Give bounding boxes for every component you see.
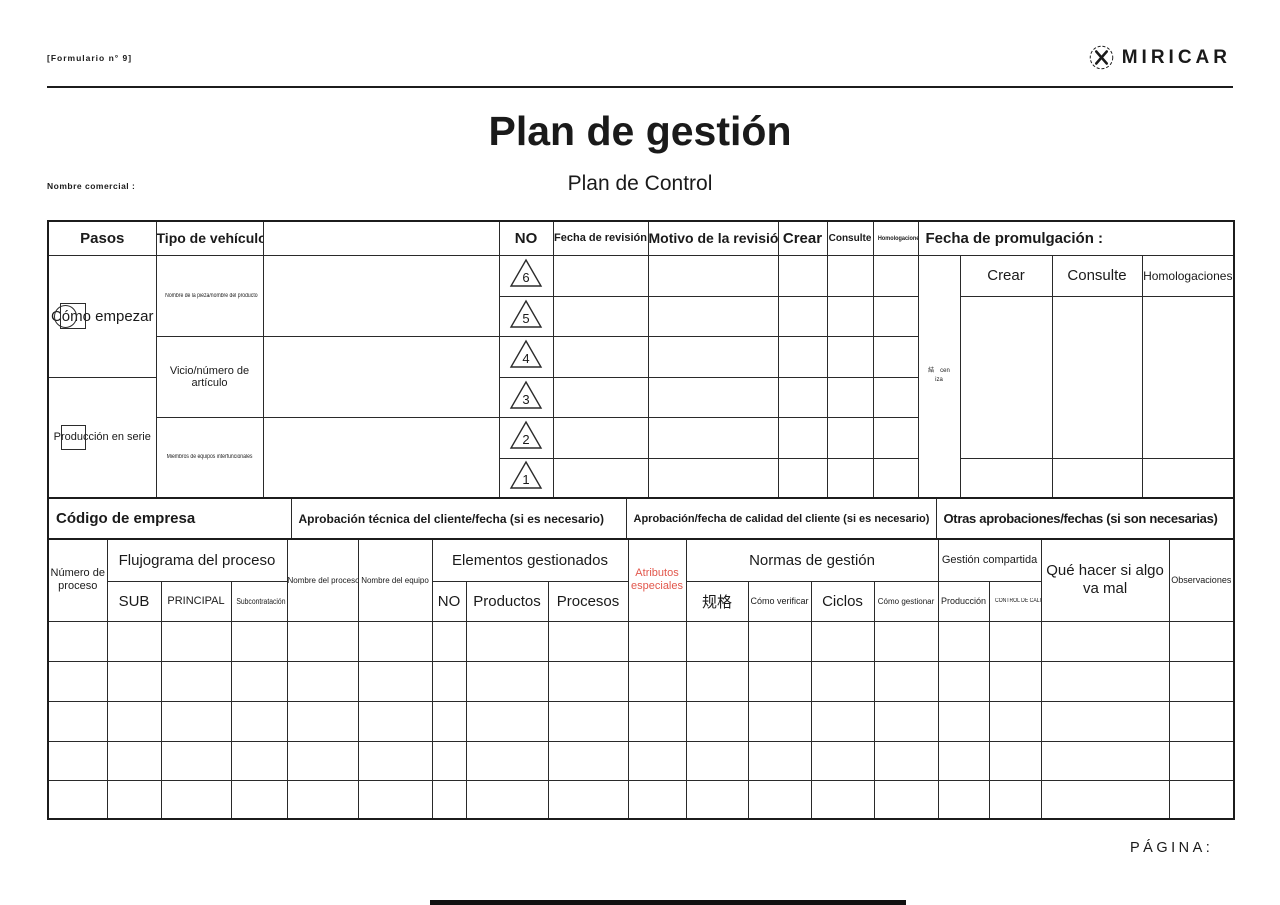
- no-marker-cell: 1: [499, 458, 553, 498]
- empty-cell: [1142, 296, 1234, 458]
- empty-cell: [811, 621, 874, 661]
- process-table: Número de proceso Flujograma del proceso…: [47, 538, 1235, 820]
- empty-cell: [1041, 780, 1169, 819]
- empty-cell: [778, 336, 827, 377]
- svg-text:6: 6: [522, 270, 529, 285]
- empty-cell: [648, 336, 778, 377]
- empty-cell: [827, 296, 873, 336]
- empty-cell: [107, 780, 161, 819]
- empty-cell: [827, 458, 873, 498]
- empty-cell: [989, 741, 1041, 780]
- no-marker-cell: 5: [499, 296, 553, 336]
- empty-cell: [358, 621, 432, 661]
- empty-cell: [778, 255, 827, 296]
- header-how-to-verify: Cómo verificar: [748, 581, 811, 621]
- empty-cell: [263, 417, 499, 498]
- no-marker-cell: 2: [499, 417, 553, 458]
- empty-cell: [287, 741, 358, 780]
- triangle-1-icon: 1: [509, 460, 543, 490]
- empty-cell: [48, 701, 107, 741]
- no-marker-cell: 3: [499, 377, 553, 417]
- header-shared-management: Gestión compartida: [938, 539, 1041, 581]
- empty-cell: [107, 701, 161, 741]
- empty-cell: [686, 741, 748, 780]
- header-process-number: Número de proceso: [48, 539, 107, 621]
- header-consult: Consulte: [827, 221, 873, 255]
- header-no: NO: [499, 221, 553, 255]
- empty-cell: [553, 377, 648, 417]
- empty-cell: [161, 701, 231, 741]
- empty-cell: [466, 661, 548, 701]
- empty-cell: [811, 741, 874, 780]
- page-subtitle: Plan de Control: [0, 172, 1280, 196]
- form-number: [Formulario n° 9]: [47, 53, 132, 63]
- empty-cell: [686, 780, 748, 819]
- empty-cell: [1169, 701, 1234, 741]
- empty-cell: [432, 701, 466, 741]
- empty-cell: [432, 741, 466, 780]
- header-production: Producción: [938, 581, 989, 621]
- no-marker-cell: 4: [499, 336, 553, 377]
- empty-cell: [1169, 780, 1234, 819]
- empty-cell: [161, 780, 231, 819]
- empty-cell: [748, 621, 811, 661]
- empty-cell: [960, 458, 1052, 498]
- empty-cell: [827, 417, 873, 458]
- approvals-row-table: Código de empresa Aprobación técnica del…: [47, 497, 1235, 540]
- empty-cell: [748, 741, 811, 780]
- vertical-note: 結cen iza: [919, 367, 960, 386]
- header-how-to-manage: Cómo gestionar: [874, 581, 938, 621]
- vehicle-row-team-members: Miembros de equipos interfuncionales: [156, 417, 263, 498]
- empty-cell: [548, 741, 628, 780]
- empty-cell: [358, 741, 432, 780]
- empty-cell: [989, 780, 1041, 819]
- empty-cell: [811, 780, 874, 819]
- empty-cell: [628, 780, 686, 819]
- empty-cell: [938, 780, 989, 819]
- header-special-attributes: Atributos especiales: [628, 539, 686, 621]
- approval-col-homologations: Homologaciones: [1142, 255, 1234, 296]
- triangle-4-icon: 4: [509, 339, 543, 369]
- empty-cell: [648, 255, 778, 296]
- header-promulgation-date: Fecha de promulgación :: [918, 221, 1234, 255]
- empty-cell: [231, 741, 287, 780]
- empty-cell: [648, 296, 778, 336]
- empty-cell: [874, 780, 938, 819]
- empty-cell: [960, 296, 1052, 458]
- empty-cell: [778, 417, 827, 458]
- empty-cell: [466, 701, 548, 741]
- empty-cell: [548, 701, 628, 741]
- empty-cell: [553, 417, 648, 458]
- empty-cell: [231, 621, 287, 661]
- empty-cell: [466, 741, 548, 780]
- empty-cell: [548, 780, 628, 819]
- empty-cell: [628, 741, 686, 780]
- empty-cell: [48, 621, 107, 661]
- empty-cell: [748, 780, 811, 819]
- empty-cell: [107, 741, 161, 780]
- empty-cell: [432, 661, 466, 701]
- header-principal: PRINCIPAL: [161, 581, 231, 621]
- empty-cell: [287, 701, 358, 741]
- empty-cell: [432, 621, 466, 661]
- empty-cell: [48, 741, 107, 780]
- header-subcontracting: Subcontratación: [231, 581, 287, 621]
- empty-cell: [263, 336, 499, 417]
- header-process-name: Nombre del proceso: [287, 539, 358, 621]
- miricar-logo-icon: [1088, 44, 1115, 71]
- empty-cell: [686, 701, 748, 741]
- empty-cell: [648, 458, 778, 498]
- empty-cell: [989, 621, 1041, 661]
- triangle-2-icon: 2: [509, 420, 543, 450]
- header-sub: SUB: [107, 581, 161, 621]
- empty-cell: [263, 221, 499, 255]
- header-homologations: Homologaciones: [873, 221, 918, 255]
- empty-cell: [778, 296, 827, 336]
- start-checkbox: [60, 303, 86, 329]
- empty-cell: [628, 661, 686, 701]
- empty-cell: [827, 377, 873, 417]
- triangle-3-icon: 3: [509, 380, 543, 410]
- empty-cell: [548, 621, 628, 661]
- empty-cell: [1169, 661, 1234, 701]
- header-observations: Observaciones: [1169, 539, 1234, 621]
- step-serial-production: Producción en serie: [48, 377, 156, 498]
- empty-cell: [989, 661, 1041, 701]
- approval-col-create: Crear: [960, 255, 1052, 296]
- no-marker-cell: 6: [499, 255, 553, 296]
- empty-cell: [748, 701, 811, 741]
- empty-cell: [1041, 741, 1169, 780]
- empty-cell: [161, 661, 231, 701]
- header-processes: Procesos: [548, 581, 628, 621]
- quality-approval-label: Aprobación/fecha de calidad del cliente …: [626, 498, 936, 539]
- empty-cell: [1041, 701, 1169, 741]
- header-no-sub: NO: [432, 581, 466, 621]
- triangle-6-icon: 6: [509, 258, 543, 288]
- empty-cell: [628, 701, 686, 741]
- empty-cell: [811, 661, 874, 701]
- empty-cell: [628, 621, 686, 661]
- empty-cell: [287, 661, 358, 701]
- header-pasos: Pasos: [48, 221, 156, 255]
- svg-text:3: 3: [522, 392, 529, 407]
- revision-table: Pasos Tipo de vehículo NO Fecha de revis…: [47, 220, 1235, 499]
- header-revision-reason: Motivo de la revisión: [648, 221, 778, 255]
- brand-logo: MIRICAR: [1088, 44, 1231, 71]
- empty-cell: [648, 417, 778, 458]
- header-equipment-name: Nombre del equipo: [358, 539, 432, 621]
- svg-text:5: 5: [522, 311, 529, 326]
- empty-cell: [811, 701, 874, 741]
- empty-cell: [358, 780, 432, 819]
- header-management-standards: Normas de gestión: [686, 539, 938, 581]
- empty-cell: [1169, 621, 1234, 661]
- svg-text:2: 2: [522, 432, 529, 447]
- empty-cell: [748, 661, 811, 701]
- empty-cell: [466, 780, 548, 819]
- vehicle-row-part-name: Nombre de la pieza/nombre del producto: [156, 255, 263, 336]
- vertical-note-cell: 結cen iza: [918, 255, 960, 498]
- empty-cell: [1052, 296, 1142, 458]
- svg-text:1: 1: [522, 472, 529, 487]
- empty-cell: [358, 701, 432, 741]
- header-divider: [47, 86, 1233, 88]
- empty-cell: [553, 255, 648, 296]
- empty-cell: [48, 780, 107, 819]
- header-flowchart: Flujograma del proceso: [107, 539, 287, 581]
- empty-cell: [466, 621, 548, 661]
- empty-cell: [873, 296, 918, 336]
- empty-cell: [1041, 661, 1169, 701]
- brand-name: MIRICAR: [1122, 47, 1231, 69]
- empty-cell: [1142, 458, 1234, 498]
- empty-cell: [1041, 621, 1169, 661]
- empty-cell: [873, 255, 918, 296]
- page-title: Plan de gestión: [0, 108, 1280, 155]
- header-cycles: Ciclos: [811, 581, 874, 621]
- empty-cell: [874, 621, 938, 661]
- empty-cell: [107, 661, 161, 701]
- empty-cell: [231, 661, 287, 701]
- empty-cell: [989, 701, 1041, 741]
- empty-cell: [827, 255, 873, 296]
- company-code-label: Código de empresa: [48, 498, 291, 539]
- triangle-5-icon: 5: [509, 299, 543, 329]
- empty-cell: [548, 661, 628, 701]
- empty-cell: [938, 661, 989, 701]
- empty-cell: [827, 336, 873, 377]
- empty-cell: [874, 661, 938, 701]
- empty-cell: [686, 661, 748, 701]
- empty-cell: [48, 661, 107, 701]
- header-products: Productos: [466, 581, 548, 621]
- empty-cell: [873, 417, 918, 458]
- empty-cell: [553, 458, 648, 498]
- empty-cell: [231, 701, 287, 741]
- empty-cell: [161, 621, 231, 661]
- empty-cell: [873, 458, 918, 498]
- header-revision-date: Fecha de revisión: [553, 221, 648, 255]
- header-quality-control: CONTROL DE CALIDAD: [989, 581, 1041, 621]
- empty-cell: [1052, 458, 1142, 498]
- header-spec: 规格: [686, 581, 748, 621]
- empty-cell: [358, 661, 432, 701]
- empty-cell: [287, 780, 358, 819]
- header-create: Crear: [778, 221, 827, 255]
- tech-approval-label: Aprobación técnica del cliente/fecha (si…: [291, 498, 626, 539]
- empty-cell: [553, 296, 648, 336]
- vehicle-row-article-number: Vicio/número de artículo: [156, 336, 263, 417]
- bottom-bar: [430, 900, 906, 905]
- header-vehicle-type: Tipo de vehículo: [156, 221, 263, 255]
- empty-cell: [648, 377, 778, 417]
- empty-cell: [778, 458, 827, 498]
- empty-cell: [874, 741, 938, 780]
- empty-cell: [553, 336, 648, 377]
- empty-cell: [1169, 741, 1234, 780]
- empty-cell: [161, 741, 231, 780]
- header-contingency: Qué hacer si algo va mal: [1041, 539, 1169, 621]
- empty-cell: [873, 377, 918, 417]
- empty-cell: [231, 780, 287, 819]
- other-approvals-label: Otras aprobaciones/fechas (si son necesa…: [936, 498, 1234, 539]
- svg-text:4: 4: [522, 351, 529, 366]
- empty-cell: [938, 701, 989, 741]
- empty-cell: [686, 621, 748, 661]
- serial-checkbox: [61, 425, 86, 450]
- page-number-label: PÁGINA:: [1130, 840, 1213, 856]
- header-managed-elements: Elementos gestionados: [432, 539, 628, 581]
- empty-cell: [778, 377, 827, 417]
- empty-cell: [873, 336, 918, 377]
- empty-cell: [263, 255, 499, 336]
- empty-cell: [287, 621, 358, 661]
- step-how-to-start: Cómo empezar: [48, 255, 156, 377]
- empty-cell: [938, 741, 989, 780]
- empty-cell: [432, 780, 466, 819]
- empty-cell: [938, 621, 989, 661]
- empty-cell: [107, 621, 161, 661]
- empty-cell: [874, 701, 938, 741]
- approval-col-consult: Consulte: [1052, 255, 1142, 296]
